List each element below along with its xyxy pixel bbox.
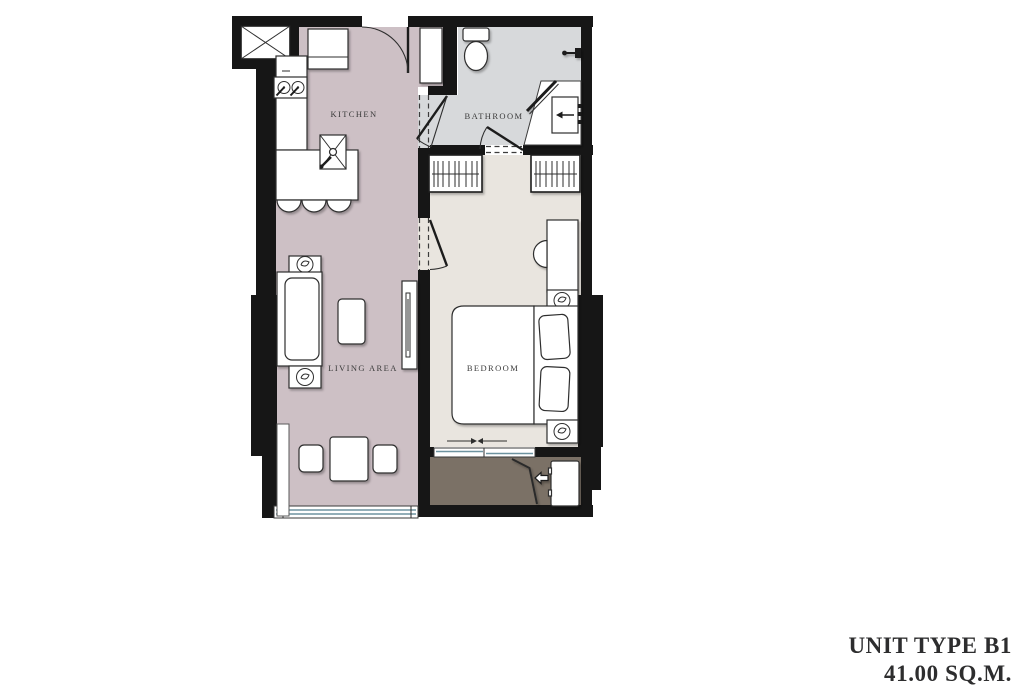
kitchen-label: KITCHEN xyxy=(330,109,377,119)
living-window xyxy=(274,506,418,518)
title-block: UNIT TYPE B1 41.00 SQ.M. xyxy=(848,633,1012,686)
wall-right-upper xyxy=(581,16,592,295)
shaft-symbol xyxy=(241,26,290,59)
bathroom-bedroom-door-dashes xyxy=(486,147,522,153)
side-table-bottom xyxy=(289,366,321,388)
vanity-sink-icon xyxy=(552,97,582,133)
nightstand-bottom xyxy=(547,420,578,443)
wall-balcony-left xyxy=(418,447,434,457)
balcony-railing xyxy=(418,505,593,517)
ac-unit xyxy=(551,461,579,506)
tall-cabinet xyxy=(420,28,442,83)
bar-stools xyxy=(277,200,351,212)
wall-right-column xyxy=(578,295,603,447)
wall-top-right xyxy=(408,16,593,27)
wall-divider-lower xyxy=(418,270,430,508)
wall-bathroom-left xyxy=(443,16,457,95)
dining-chair xyxy=(299,445,323,472)
kitchen-sink-icon xyxy=(320,135,347,169)
wall-right-bump xyxy=(592,447,601,490)
pillow xyxy=(539,366,570,411)
stove-icon xyxy=(274,77,307,98)
tv-console xyxy=(402,281,417,369)
wardrobe-left xyxy=(429,155,482,192)
refrigerator xyxy=(308,29,348,69)
floor-plan-drawing: KITCHEN BATHROOM LIVING AREA BEDROOM UNI… xyxy=(0,0,1024,691)
unit-type-title: UNIT TYPE B1 xyxy=(848,633,1012,658)
living-area-label: LIVING AREA xyxy=(328,363,397,373)
desk xyxy=(547,220,578,292)
dining-chair xyxy=(373,445,397,473)
wardrobe-right xyxy=(531,155,580,192)
kitchen-counter xyxy=(276,56,307,150)
dining-table xyxy=(330,437,368,481)
floor-plan-page: KITCHEN BATHROOM LIVING AREA BEDROOM UNI… xyxy=(0,0,1024,691)
sofa-cushion xyxy=(285,278,319,360)
wall-bathroom-bottom-left xyxy=(430,145,485,155)
ac-unit-tab xyxy=(549,490,552,496)
toilet-icon xyxy=(463,28,489,71)
bedroom-label: BEDROOM xyxy=(467,363,519,373)
side-window-strip xyxy=(277,424,289,516)
bathroom-label: BATHROOM xyxy=(465,111,524,121)
wall-right-balcony xyxy=(581,447,592,510)
wall-stub xyxy=(428,86,454,95)
wall-left-column xyxy=(251,295,277,456)
pillow xyxy=(538,314,570,360)
side-table-top xyxy=(289,256,321,273)
wall-left-upper xyxy=(256,53,276,295)
wall-balcony-right xyxy=(535,447,581,457)
unit-area-title: 41.00 SQ.M. xyxy=(884,661,1012,686)
ac-unit-tab xyxy=(549,468,552,474)
coffee-table xyxy=(338,299,365,344)
